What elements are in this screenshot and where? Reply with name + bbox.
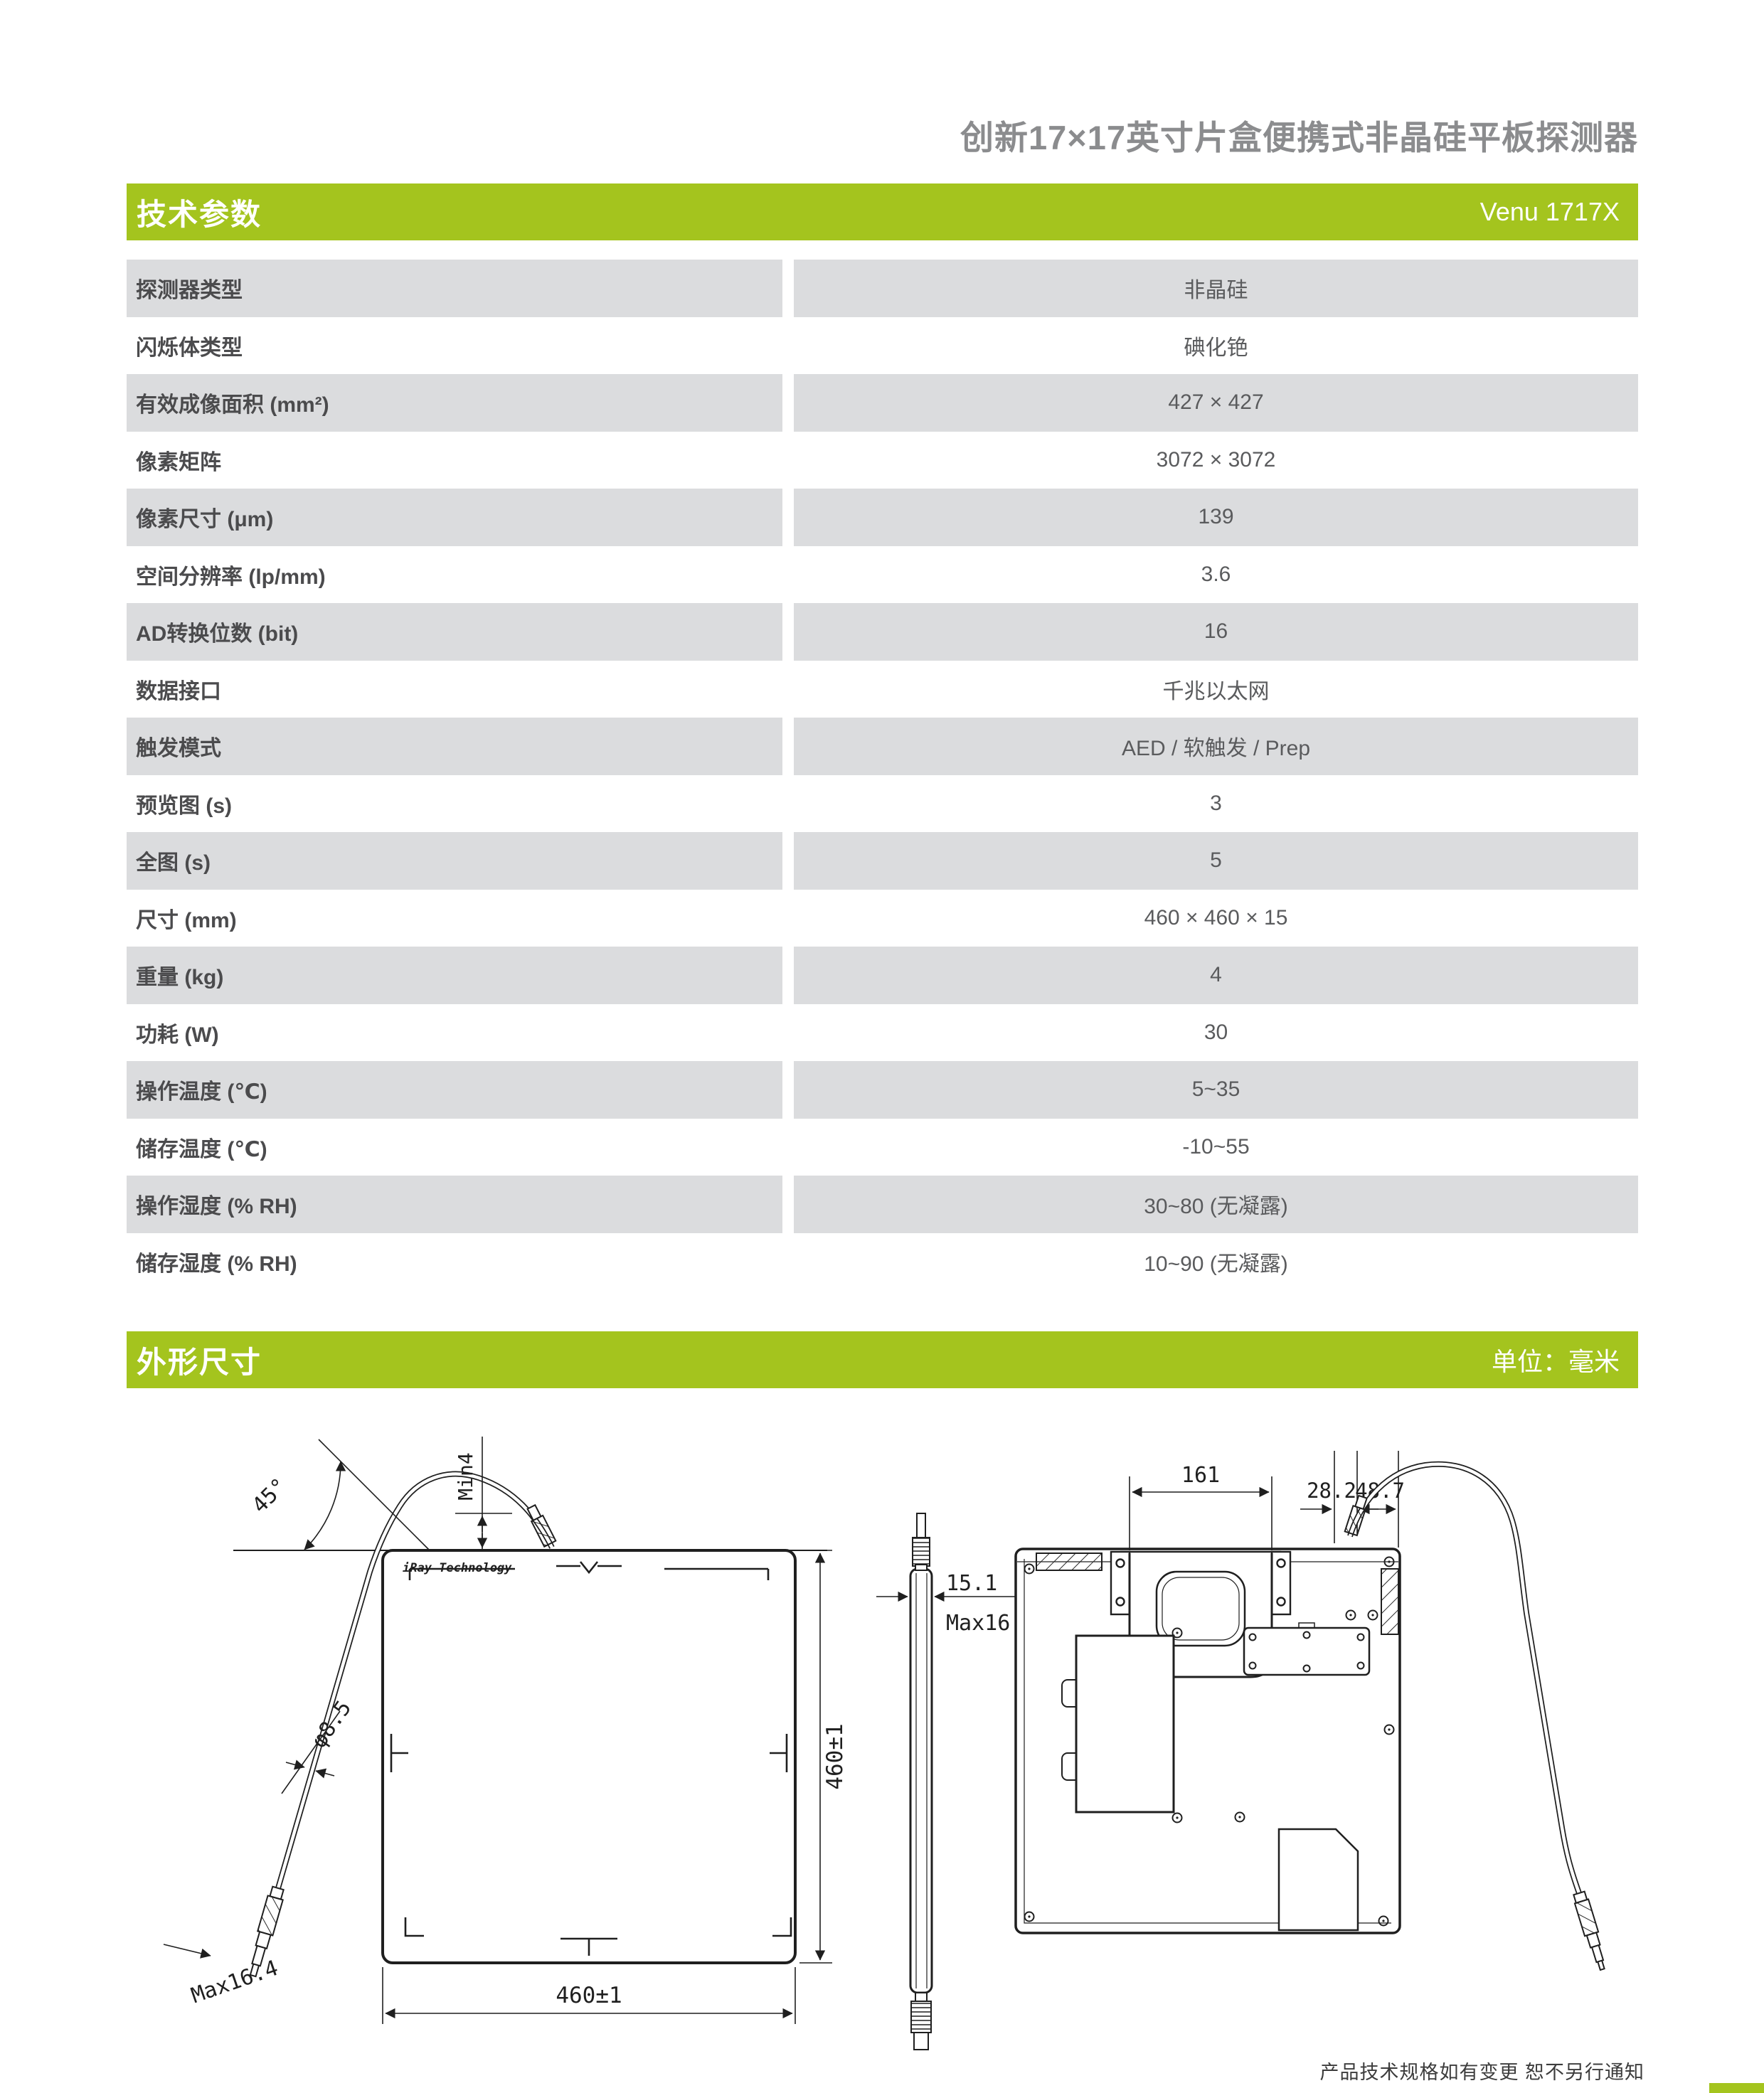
dim-angle-45: 45°: [248, 1439, 429, 1550]
svg-text:28.2: 28.2: [1307, 1479, 1356, 1503]
spec-label: 储存湿度 (% RH): [127, 1233, 782, 1291]
svg-text:161: 161: [1181, 1463, 1220, 1488]
spec-label: 尺寸 (mm): [127, 890, 782, 947]
spec-value: 427 × 427: [794, 374, 1638, 432]
spec-value: 碘化铯: [794, 317, 1638, 375]
table-row: 闪烁体类型碘化铯: [127, 317, 1638, 375]
spec-value: 千兆以太网: [794, 661, 1638, 718]
spec-label: 有效成像面积 (mm²): [127, 374, 782, 432]
model-badge: Venu 1717X: [1480, 197, 1620, 227]
spec-value: AED / 软触发 / Prep: [794, 718, 1638, 775]
brand-logo-text: iRay Technology: [403, 1561, 512, 1575]
technical-drawing-svg: iRay Technology: [127, 1429, 1638, 2055]
spec-label: 像素矩阵: [127, 432, 782, 489]
back-view: 161 28.2 48.7: [1016, 1451, 1609, 1971]
spec-label: 全图 (s): [127, 832, 782, 890]
spec-label: 功耗 (W): [127, 1004, 782, 1062]
dim-width: 460±1: [383, 1967, 795, 2024]
table-row: 重量 (kg)4: [127, 947, 1638, 1004]
spec-value: 30: [794, 1004, 1638, 1062]
table-row: 数据接口千兆以太网: [127, 661, 1638, 718]
spec-label: AD转换位数 (bit): [127, 603, 782, 661]
table-row: 尺寸 (mm)460 × 460 × 15: [127, 890, 1638, 947]
spec-label: 像素尺寸 (μm): [127, 489, 782, 546]
table-row: 功耗 (W)30: [127, 1004, 1638, 1062]
spec-value: 30~80 (无凝露): [794, 1176, 1638, 1233]
spec-label: 空间分辨率 (lp/mm): [127, 546, 782, 604]
spec-value: 460 × 460 × 15: [794, 890, 1638, 947]
unit-label: 单位：毫米: [1492, 1341, 1620, 1378]
spec-value: 139: [794, 489, 1638, 546]
spec-value: 非晶硅: [794, 260, 1638, 317]
table-row: AD转换位数 (bit)16: [127, 603, 1638, 661]
table-row: 探测器类型非晶硅: [127, 260, 1638, 317]
table-row: 空间分辨率 (lp/mm)3.6: [127, 546, 1638, 604]
table-row: 触发模式AED / 软触发 / Prep: [127, 718, 1638, 775]
spec-label: 重量 (kg): [127, 947, 782, 1004]
section-title: 技术参数: [137, 191, 262, 234]
spec-value: 10~90 (无凝露): [794, 1233, 1638, 1291]
spec-label: 储存温度 (℃): [127, 1119, 782, 1176]
spec-value: 3.6: [794, 546, 1638, 604]
page-title: 创新17×17英寸片盒便携式非晶硅平板探测器: [127, 119, 1638, 156]
spec-label: 预览图 (s): [127, 775, 782, 833]
datasheet-page: 创新17×17英寸片盒便携式非晶硅平板探测器 技术参数 Venu 1717X 探…: [0, 0, 1764, 2093]
spec-value: 3: [794, 775, 1638, 833]
svg-text:45°: 45°: [248, 1474, 292, 1518]
dim-min4: Min4: [454, 1437, 512, 1550]
svg-text:Min4: Min4: [454, 1452, 477, 1500]
spec-value: 5: [794, 832, 1638, 890]
table-row: 操作温度 (℃)5~35: [127, 1061, 1638, 1119]
spec-label: 操作湿度 (% RH): [127, 1176, 782, 1233]
table-row: 操作湿度 (% RH)30~80 (无凝露): [127, 1176, 1638, 1233]
spec-value: 16: [794, 603, 1638, 661]
spec-label: 触发模式: [127, 718, 782, 775]
table-row: 全图 (s)5: [127, 832, 1638, 890]
spec-value: 3072 × 3072: [794, 432, 1638, 489]
spec-value: 4: [794, 947, 1638, 1004]
spec-value: -10~55: [794, 1119, 1638, 1176]
svg-text:Max16.4: Max16.4: [188, 1956, 281, 2008]
table-row: 预览图 (s)3: [127, 775, 1638, 833]
svg-text:15.1: 15.1: [946, 1571, 997, 1596]
dim-cable-diameter: φ8.5: [282, 1696, 356, 1794]
section-header-outline-dimensions: 外形尺寸 单位：毫米: [127, 1331, 1638, 1388]
outline-drawing: iRay Technology: [127, 1429, 1638, 2055]
spec-table: 探测器类型非晶硅 闪烁体类型碘化铯 有效成像面积 (mm²)427 × 427 …: [127, 260, 1638, 1290]
spec-label: 操作温度 (℃): [127, 1061, 782, 1119]
table-row: 储存温度 (℃)-10~55: [127, 1119, 1638, 1176]
svg-text:460±1: 460±1: [822, 1723, 848, 1789]
spec-label: 探测器类型: [127, 260, 782, 317]
section-title: 外形尺寸: [137, 1338, 262, 1382]
table-row: 像素尺寸 (μm)139: [127, 489, 1638, 546]
table-row: 有效成像面积 (mm²)427 × 427: [127, 374, 1638, 432]
footer-accent-chip: [1709, 2083, 1764, 2093]
section-header-tech-specs: 技术参数 Venu 1717X: [127, 183, 1638, 240]
svg-text:460±1: 460±1: [556, 1983, 622, 2008]
spec-label: 闪烁体类型: [127, 317, 782, 375]
svg-text:φ8.5: φ8.5: [307, 1696, 356, 1752]
table-row: 像素矩阵3072 × 3072: [127, 432, 1638, 489]
front-view: iRay Technology: [164, 1437, 848, 2024]
spec-value: 5~35: [794, 1061, 1638, 1119]
dim-handle-width: 161: [1130, 1463, 1272, 1550]
table-row: 储存湿度 (% RH)10~90 (无凝露): [127, 1233, 1638, 1291]
dim-height: 460±1: [799, 1550, 848, 1963]
spec-label: 数据接口: [127, 661, 782, 718]
footer-disclaimer: 产品技术规格如有变更 恕不另行通知: [1319, 2057, 1645, 2084]
